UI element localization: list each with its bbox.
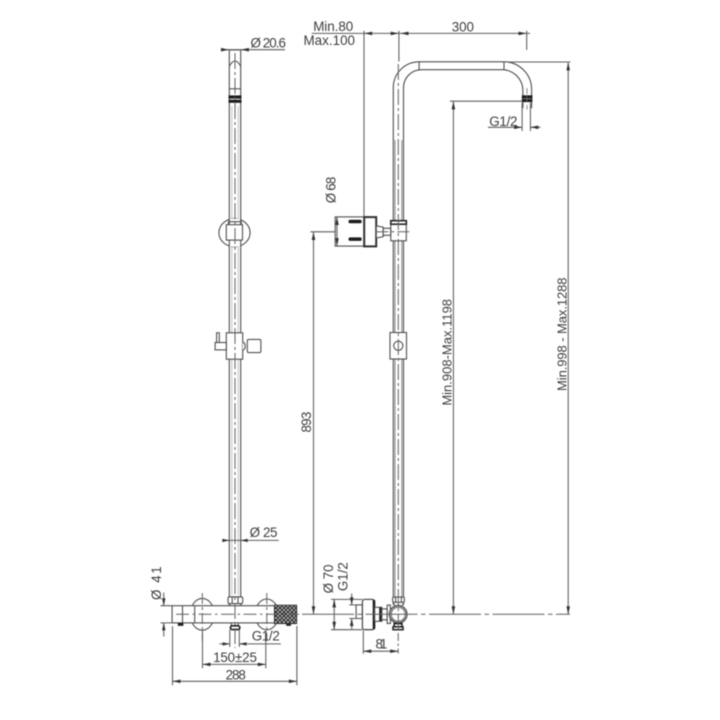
- svg-text:Ø 25: Ø 25: [250, 525, 278, 540]
- svg-text:893: 893: [299, 412, 314, 433]
- svg-text:G1/2: G1/2: [335, 562, 350, 591]
- svg-text:288: 288: [226, 667, 246, 682]
- svg-text:Ø 20.6: Ø 20.6: [251, 36, 287, 51]
- svg-text:Ø 68: Ø 68: [323, 177, 338, 204]
- svg-text:Max.100: Max.100: [304, 33, 356, 48]
- svg-text:150±25: 150±25: [213, 650, 257, 665]
- svg-text:Min.998 - Max.1288: Min.998 - Max.1288: [554, 277, 569, 391]
- svg-text:Min.80: Min.80: [313, 19, 353, 34]
- svg-text:Min.908-Max.1198: Min.908-Max.1198: [440, 299, 455, 406]
- svg-text:Ø 70: Ø 70: [321, 564, 336, 593]
- svg-text:G1/2: G1/2: [252, 629, 280, 644]
- svg-text:81: 81: [375, 636, 387, 651]
- svg-text:G1/2: G1/2: [489, 114, 517, 129]
- svg-text:300: 300: [452, 20, 474, 35]
- svg-text:Ø 41: Ø 41: [149, 566, 164, 600]
